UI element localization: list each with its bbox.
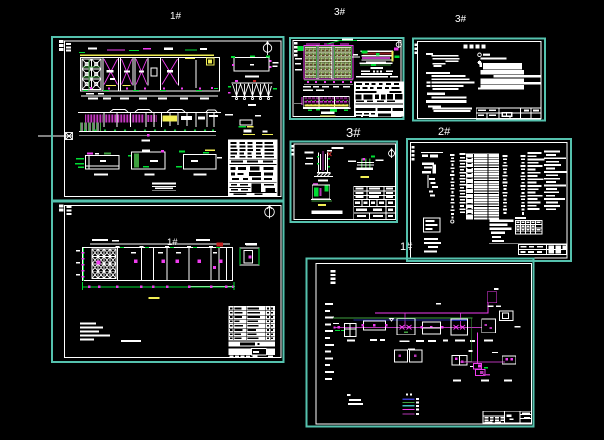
svg-text:2#: 2#	[438, 126, 451, 138]
svg-text:3#: 3#	[346, 125, 361, 140]
svg-text:3#: 3#	[455, 14, 467, 25]
svg-text:1#: 1#	[170, 11, 182, 22]
svg-text:3#: 3#	[334, 7, 346, 18]
